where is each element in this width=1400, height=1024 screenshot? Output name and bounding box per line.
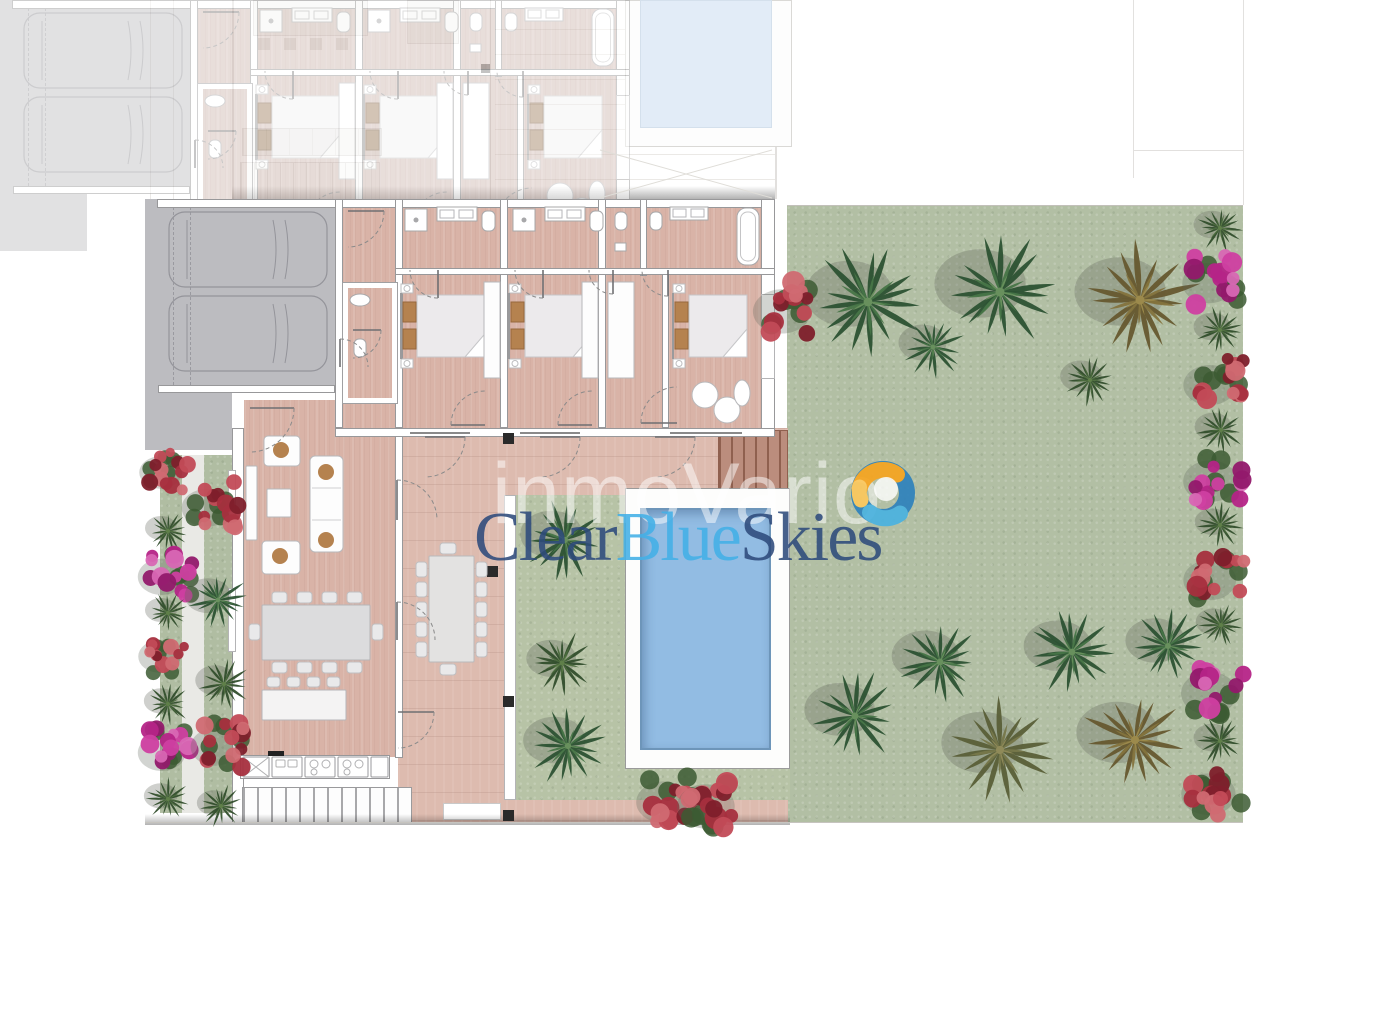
bougainvillea-red-bloom	[1213, 791, 1228, 806]
bougainvillea-red-bloom	[203, 735, 216, 748]
bougainvillea-red-bloom	[199, 517, 212, 530]
bougainvillea-red-bloom	[173, 649, 183, 659]
bougainvillea-red-bloom	[225, 748, 240, 763]
bougainvillea-red-bloom	[1214, 548, 1232, 566]
bougainvillea-magenta-bloom	[158, 573, 177, 592]
cushion	[272, 548, 288, 564]
palm-tree-center	[1069, 649, 1076, 656]
kitchen-island	[262, 690, 346, 720]
bougainvillea-red-bloom	[789, 289, 803, 303]
bar-stool	[267, 677, 280, 687]
bush-center	[1218, 226, 1222, 230]
bush-center	[222, 682, 226, 686]
outdoor-chair	[440, 543, 456, 554]
dining-chair	[249, 624, 260, 640]
bougainvillea-red-bloom	[229, 497, 246, 514]
outdoor-chair	[476, 602, 487, 617]
bougainvillea-red-bloom	[219, 718, 231, 730]
bougainvillea-red-leaf	[681, 807, 701, 827]
bush-center	[1088, 378, 1092, 382]
bush-center	[1219, 428, 1223, 432]
bougainvillea-red-bloom	[160, 477, 173, 490]
bougainvillea-red-bloom	[179, 456, 196, 473]
bush-center	[166, 611, 170, 615]
bougainvillea-magenta-bloom	[1186, 294, 1206, 314]
palm-tree-center	[1131, 736, 1139, 744]
bougainvillea-magenta-bloom	[1211, 477, 1224, 490]
bougainvillea-red-leaf	[1231, 793, 1250, 812]
bougainvillea-red-bloom	[761, 322, 781, 342]
bougainvillea-red-bloom	[144, 646, 155, 657]
dining-chair	[347, 662, 362, 673]
palm-tree-center	[216, 598, 221, 603]
bar-stool	[327, 677, 340, 687]
outdoor-chair	[416, 622, 427, 637]
palm-tree-center	[931, 345, 936, 350]
bougainvillea-magenta-bloom	[1231, 490, 1248, 507]
furniture-layer	[243, 436, 487, 777]
bougainvillea-red-bloom	[1197, 791, 1211, 805]
bush-center	[166, 529, 170, 533]
cushion	[318, 464, 334, 480]
palm-tree-center	[995, 287, 1004, 296]
bush-center	[1218, 739, 1222, 743]
bougainvillea-red-bloom	[198, 483, 212, 497]
palm-tree-center	[1165, 643, 1171, 649]
bougainvillea-red-bloom	[165, 448, 174, 457]
bar-stool	[287, 677, 300, 687]
bush-center	[560, 661, 565, 666]
palm-tree-center	[864, 298, 873, 307]
palm-tree-center	[565, 743, 571, 749]
bougainvillea-magenta-bloom	[1228, 678, 1243, 693]
bougainvillea-red-bloom	[1227, 387, 1240, 400]
bougainvillea-red-bloom	[196, 717, 214, 735]
bougainvillea-magenta-bloom	[1189, 493, 1202, 506]
faucet	[268, 751, 284, 756]
dining-chair	[347, 592, 362, 603]
bush-center	[219, 804, 223, 808]
bougainvillea-red-bloom	[1237, 555, 1250, 568]
outdoor-chair	[416, 562, 427, 577]
palm-tree-center	[1135, 295, 1144, 304]
bougainvillea-red-bloom	[226, 474, 242, 490]
outdoor-chair	[440, 664, 456, 675]
brand-part-blue: Blue	[616, 499, 740, 576]
bougainvillea-magenta-bloom	[141, 735, 160, 754]
bougainvillea-magenta-bloom	[180, 564, 197, 581]
bougainvillea-red-bloom	[236, 722, 249, 735]
door-arc	[398, 712, 434, 748]
outdoor-chair	[476, 622, 487, 637]
dining-chair	[272, 592, 287, 603]
brand-swirl-logo	[845, 455, 925, 535]
bougainvillea-red-bloom	[227, 519, 243, 535]
dining-chair	[322, 662, 337, 673]
outdoor-chair	[476, 642, 487, 657]
outdoor-table	[429, 556, 474, 662]
bougainvillea-red-bloom	[799, 325, 816, 342]
dining-chair	[322, 592, 337, 603]
bougainvillea-magenta-bloom	[1199, 697, 1221, 719]
bougainvillea-red-bloom	[797, 305, 812, 320]
bougainvillea-red-leaf	[640, 770, 659, 789]
bougainvillea-red-bloom	[1208, 583, 1221, 596]
palm-tree-center	[937, 659, 944, 666]
bougainvillea-red-bloom	[1233, 584, 1248, 599]
cushion	[318, 532, 334, 548]
bougainvillea-magenta-bloom	[1226, 283, 1239, 296]
outdoor-chair	[476, 582, 487, 597]
bush-center	[166, 702, 170, 706]
door-arc	[397, 480, 437, 520]
dining-chair	[272, 662, 287, 673]
bougainvillea-red-bloom	[716, 772, 738, 794]
bougainvillea-red-bloom	[177, 484, 188, 495]
bougainvillea-magenta-bloom	[155, 750, 167, 762]
appliance	[371, 757, 388, 777]
bougainvillea-red-bloom	[149, 459, 161, 471]
bougainvillea-red-leaf	[678, 768, 697, 787]
bougainvillea-magenta-bloom	[1184, 259, 1205, 280]
bougainvillea-red-bloom	[224, 730, 239, 745]
bougainvillea-magenta-bloom	[165, 550, 184, 569]
bougainvillea-magenta-bloom	[146, 554, 158, 566]
bougainvillea-magenta-bloom	[1207, 263, 1222, 278]
door-arc	[425, 437, 465, 477]
dining-chair	[372, 624, 383, 640]
bougainvillea-red-bloom	[705, 800, 722, 817]
dining-chair	[297, 662, 312, 673]
outdoor-chair	[416, 582, 427, 597]
bush-center	[1218, 328, 1222, 332]
bougainvillea-magenta-bloom	[1208, 461, 1220, 473]
bougainvillea-red-bloom	[683, 788, 701, 806]
bougainvillea-red-bloom	[713, 817, 733, 837]
neighbor-garden-lines	[600, 150, 772, 198]
bougainvillea-red-bloom	[141, 474, 158, 491]
dining-table	[262, 605, 370, 660]
bougainvillea-magenta-bloom	[1227, 272, 1240, 285]
coffee-table	[267, 489, 291, 517]
outdoor-chair	[416, 642, 427, 657]
bougainvillea-magenta-bloom	[1198, 677, 1212, 691]
palm-tree-center	[851, 712, 858, 719]
bougainvillea-red-bloom	[1209, 766, 1225, 782]
appliance	[338, 757, 368, 777]
appliance	[305, 757, 335, 777]
console-table	[246, 466, 257, 540]
bush-center	[1218, 523, 1222, 527]
bougainvillea-magenta-bloom	[1232, 461, 1250, 479]
bush-center	[1219, 623, 1223, 627]
bush-center	[166, 797, 170, 801]
bar-stool	[307, 677, 320, 687]
palm-tree-center	[996, 746, 1004, 754]
floor-plan-canvas: inmoVario ClearBlueSkies	[0, 0, 1400, 1024]
brand-part-clear: Clear	[474, 499, 616, 576]
bougainvillea-red-bloom	[1197, 389, 1217, 409]
bougainvillea-red-bloom	[651, 803, 670, 822]
bougainvillea-magenta-bloom	[1222, 252, 1242, 272]
bougainvillea-red-bloom	[201, 751, 216, 766]
bougainvillea-red-bloom	[1187, 576, 1208, 597]
watermark-brand: ClearBlueSkies	[474, 503, 882, 573]
dining-chair	[297, 592, 312, 603]
bougainvillea-red-bloom	[1222, 353, 1234, 365]
